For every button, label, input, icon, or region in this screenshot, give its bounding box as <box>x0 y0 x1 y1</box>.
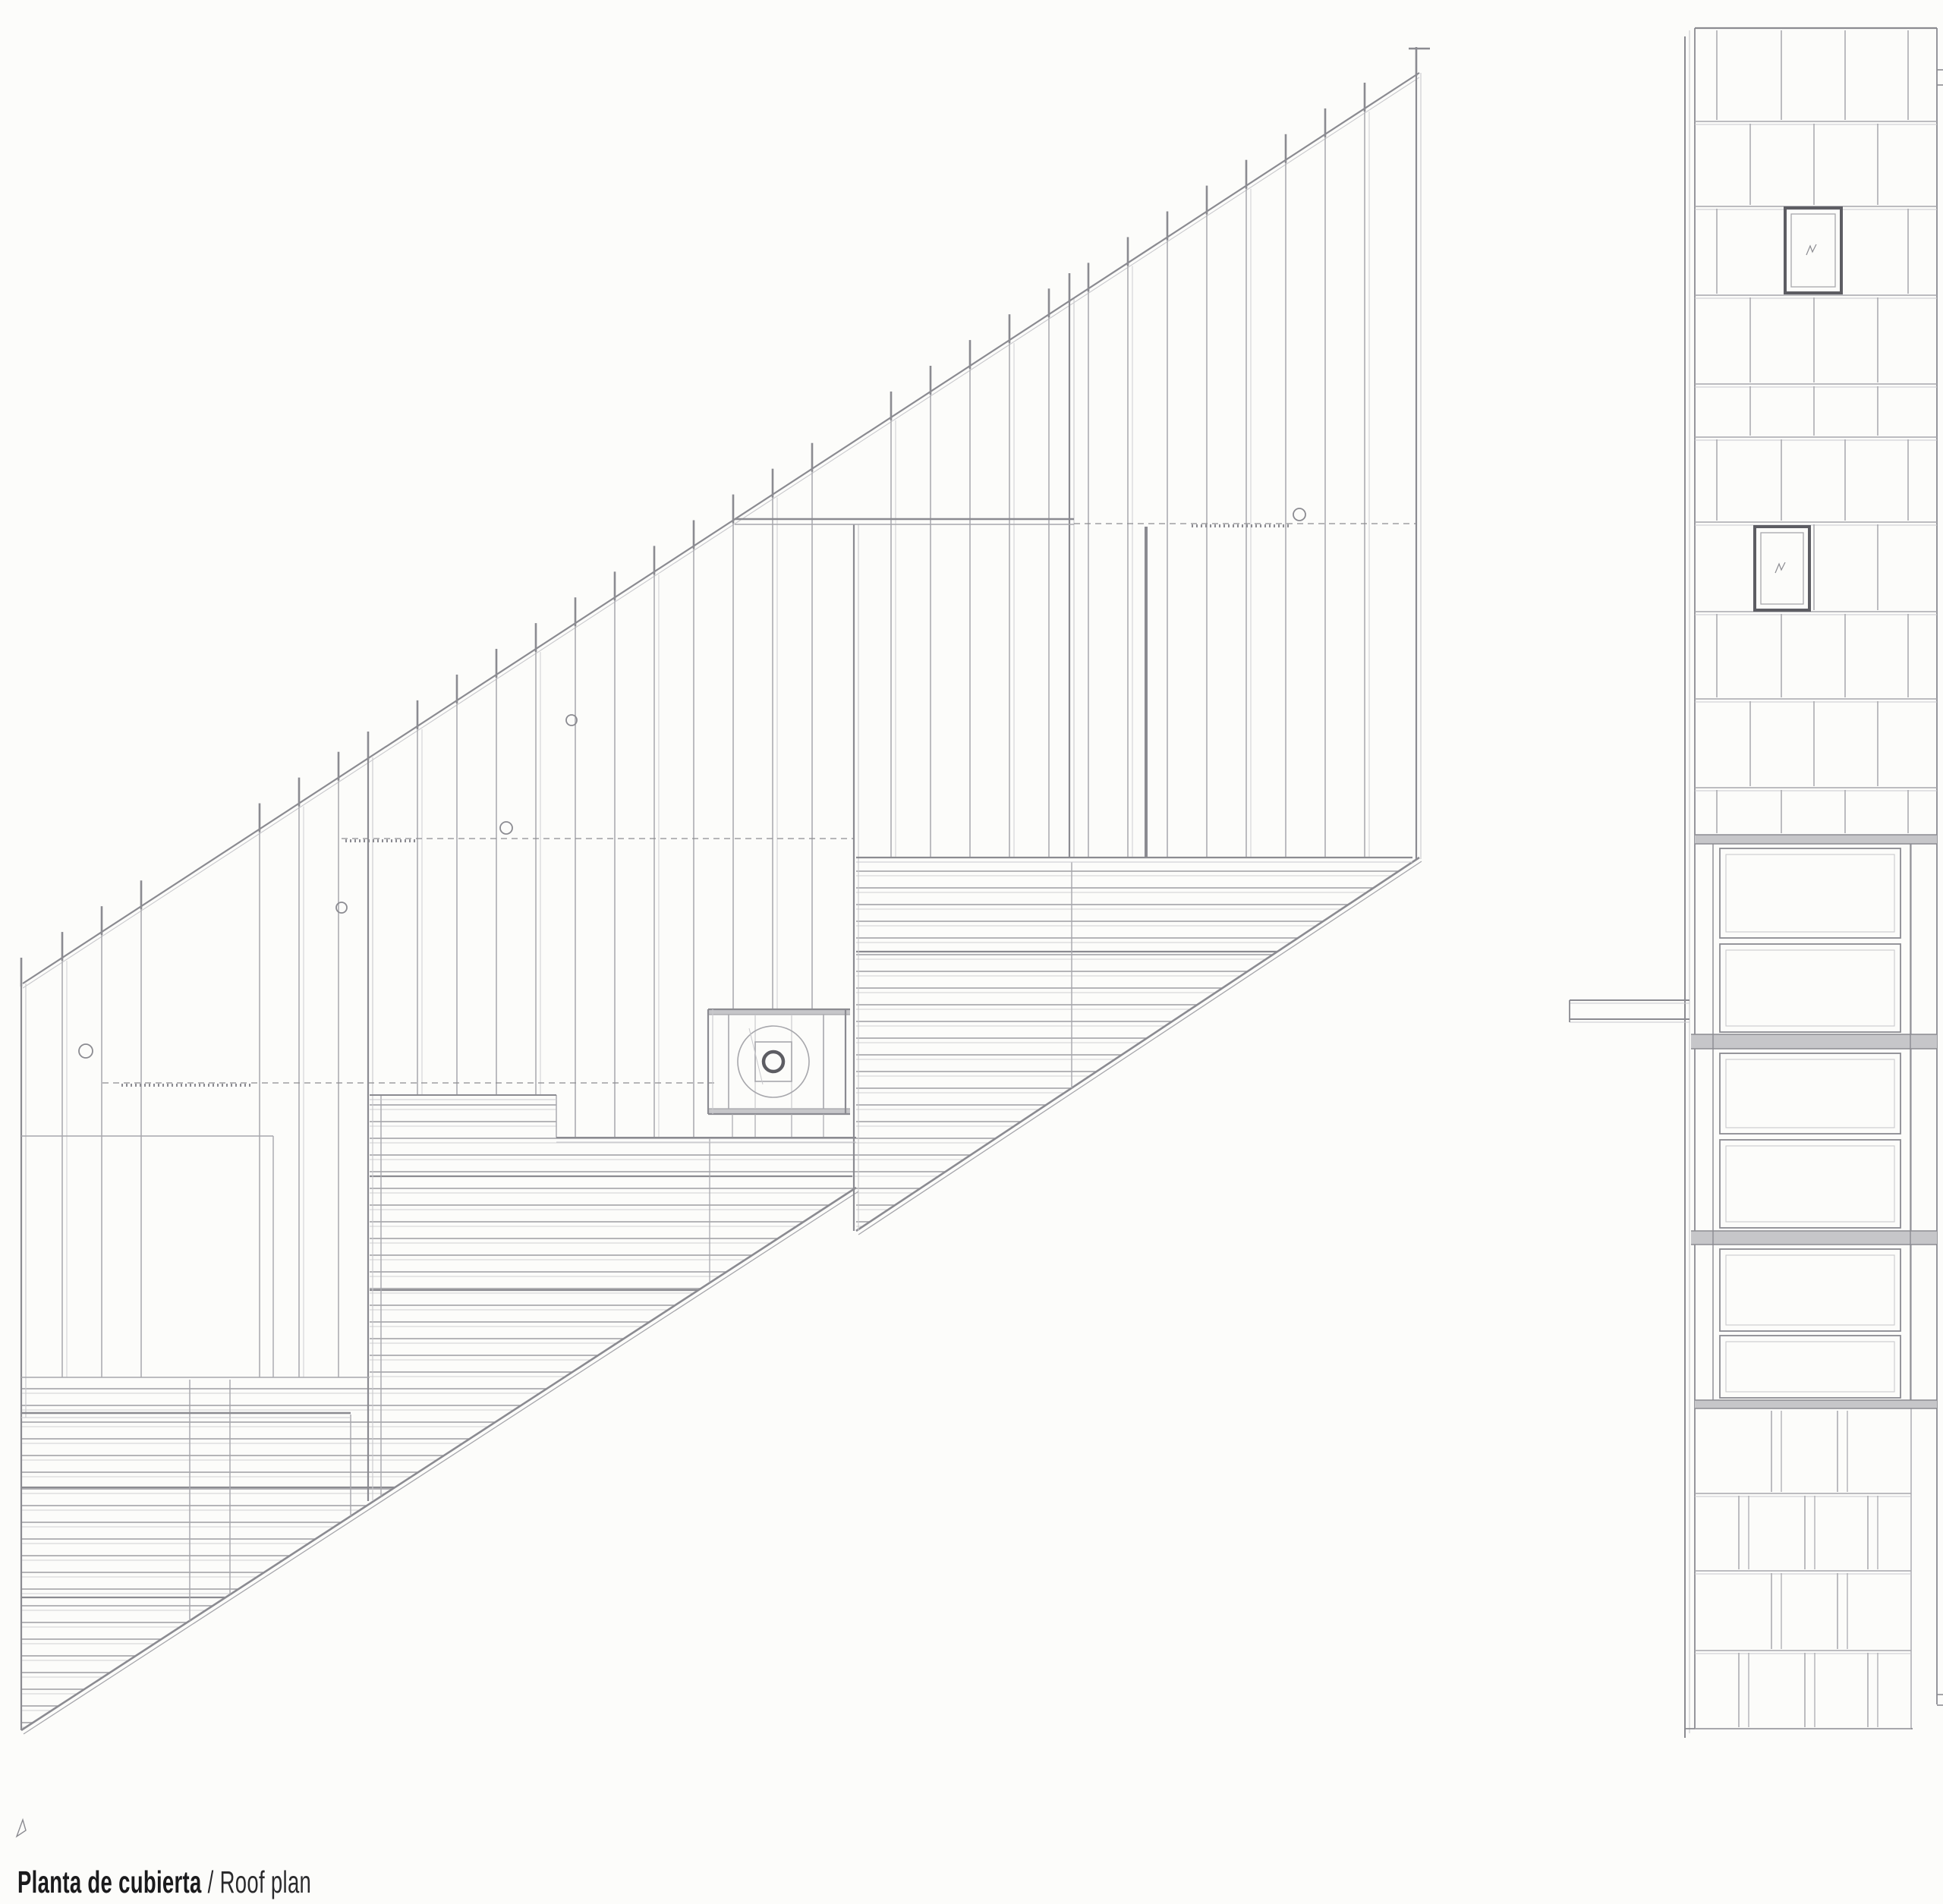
caption-title-english: Roof plan <box>220 1865 312 1899</box>
floor-band <box>1691 1034 1937 1049</box>
caption-separator: / <box>202 1865 220 1899</box>
drawing-caption: Planta de cubierta / Roof plan <box>17 1864 311 1900</box>
floor-band <box>1695 835 1937 844</box>
caption-title-spanish: Planta de cubierta <box>17 1865 202 1899</box>
floor-band <box>1695 1400 1937 1408</box>
roof-plan-figure <box>0 0 1943 1904</box>
floor-band <box>1691 1231 1937 1245</box>
drawing-sheet: Planta de cubierta / Roof plan <box>0 0 1943 1904</box>
